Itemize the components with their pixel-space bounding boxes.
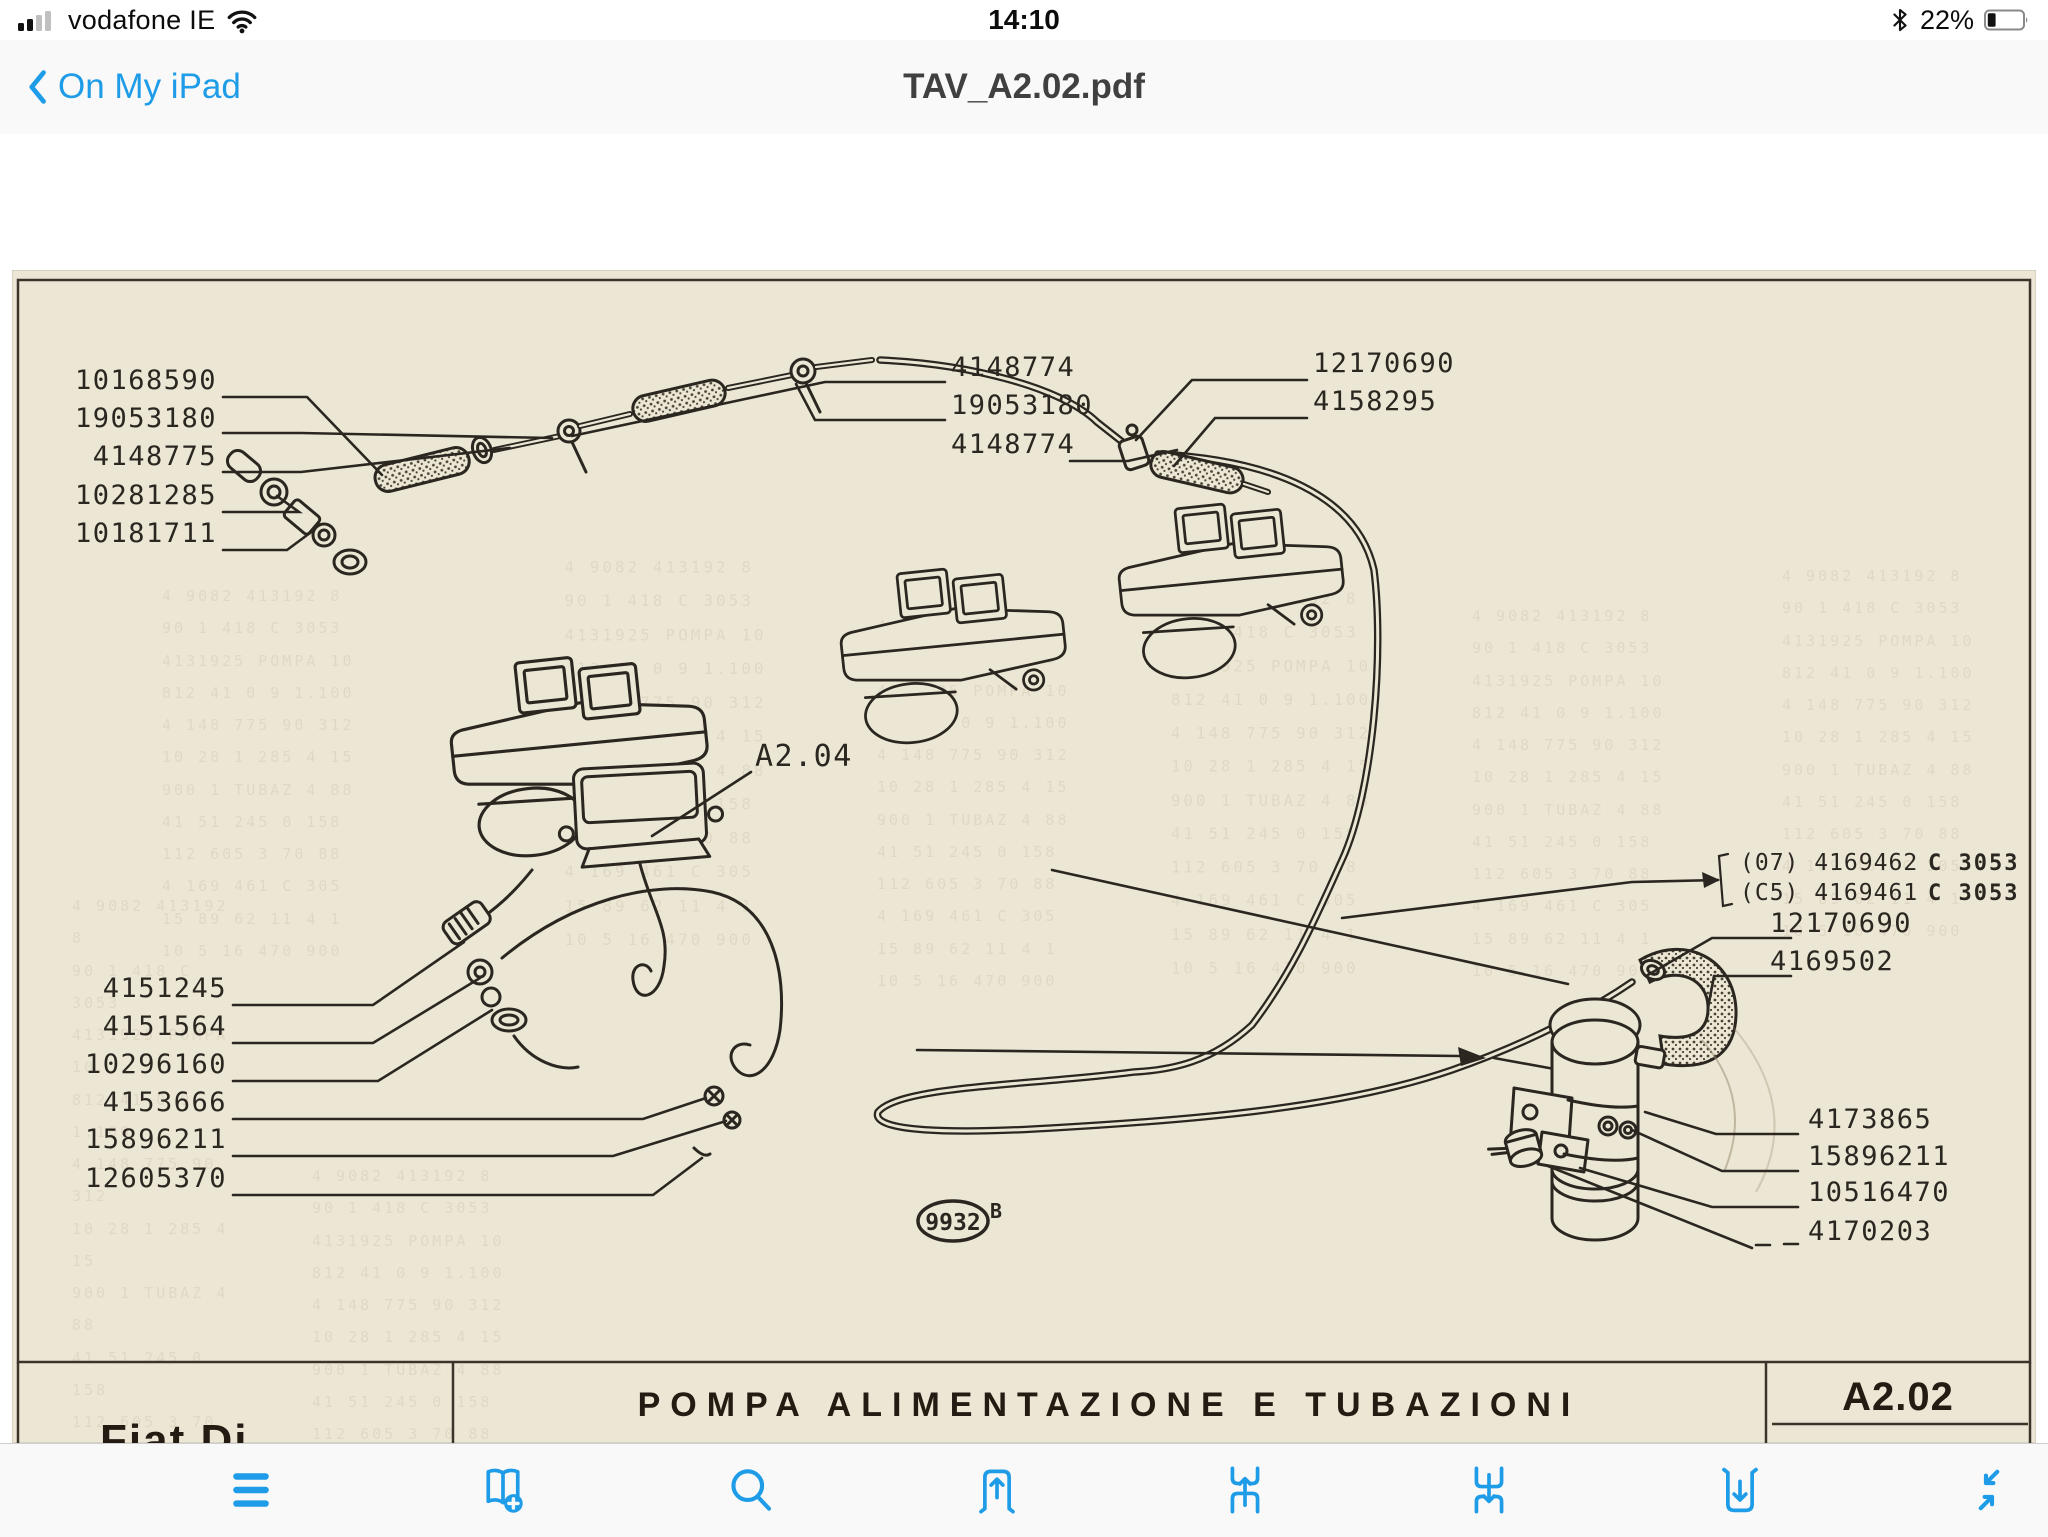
page-down-button[interactable] <box>1708 1458 1772 1522</box>
bottom-toolbar <box>0 1443 2048 1537</box>
menu-icon <box>226 1465 276 1515</box>
battery-icon <box>1984 8 2030 32</box>
back-button[interactable]: On My iPad <box>26 40 241 134</box>
part-callout: 4169502 <box>1770 946 1894 977</box>
part-callouts: 10168590 19053180 4148775 10281285 10181… <box>75 348 2020 1247</box>
diagram-reference-callout: A2.04 <box>755 739 853 774</box>
sheet-title: POMPA ALIMENTAZIONE E TUBAZIONI <box>638 1386 1581 1424</box>
clock: 14:10 <box>988 4 1060 36</box>
part-callout: C 3053 <box>1928 881 2019 906</box>
nav-bar: On My iPad TAV_A2.02.pdf <box>0 40 2048 135</box>
part-callout: 12605370 <box>85 1163 227 1194</box>
part-callout: 12170690 <box>1770 908 1912 939</box>
part-callout: 4151245 <box>103 973 227 1004</box>
ipad-screen: vodafone IE 14:10 22% <box>0 0 2048 1536</box>
wifi-icon <box>225 6 259 34</box>
cellular-signal-icon <box>18 8 58 32</box>
part-callout: 10181711 <box>75 518 217 549</box>
collapse-button[interactable] <box>1957 1458 2021 1522</box>
part-callout: 4158295 <box>1313 386 1437 417</box>
menu-button[interactable] <box>219 1458 283 1522</box>
part-callout: (07) 4169462 <box>1740 850 1918 876</box>
part-callout: (C5) 4169461 <box>1740 880 1918 906</box>
part-callout: 4148775 <box>93 441 217 472</box>
status-bar: vodafone IE 14:10 22% <box>0 0 2048 40</box>
pdf-page[interactable]: 4 9082 413192 8 90 1 418 C 3053 4131925 … <box>12 270 2036 1443</box>
battery-percent-label: 22% <box>1920 5 1974 36</box>
part-callout: 4173865 <box>1808 1104 1932 1135</box>
canister-drawing <box>1486 949 1775 1240</box>
part-callout: 4148774 <box>951 429 1075 460</box>
page-down-icon <box>1714 1464 1766 1516</box>
part-callout: C 3053 <box>1928 851 2019 876</box>
part-callout: 19053180 <box>75 403 217 434</box>
part-callout: 4153666 <box>103 1087 227 1118</box>
part-callout: 15896211 <box>1808 1141 1950 1172</box>
part-callout: 4170203 <box>1808 1216 1932 1247</box>
parts-diagram: 10168590 19053180 4148775 10281285 10181… <box>12 270 2036 1443</box>
stamp-suffix: B <box>990 1199 1002 1223</box>
part-callout: 10168590 <box>75 365 217 396</box>
part-callout: 4148774 <box>951 352 1075 383</box>
insert-page-below-icon <box>1463 1464 1515 1516</box>
document-title: TAV_A2.02.pdf <box>903 40 1145 134</box>
part-callout: 4151564 <box>103 1011 227 1042</box>
search-button[interactable] <box>719 1458 783 1522</box>
footer-left-partial-text: Fiat Di <box>100 1416 248 1443</box>
fuel-rail-drawing <box>224 359 1632 1131</box>
page-up-button[interactable] <box>965 1458 1029 1522</box>
collapse-icon <box>1963 1464 2015 1516</box>
insert-page-below-button[interactable] <box>1457 1458 1521 1522</box>
carrier-label: vodafone IE <box>68 5 215 36</box>
insert-page-above-icon <box>1219 1464 1271 1516</box>
part-callout: 10516470 <box>1808 1177 1950 1208</box>
pdf-content-area[interactable]: 4 9082 413192 8 90 1 418 C 3053 4131925 … <box>0 134 2048 1443</box>
part-callout: 15896211 <box>85 1124 227 1155</box>
add-bookmark-button[interactable] <box>471 1458 535 1522</box>
insert-page-above-button[interactable] <box>1213 1458 1277 1522</box>
page-up-icon <box>971 1464 1023 1516</box>
sheet-code: A2.02 <box>1842 1375 1954 1419</box>
part-callout: 12170690 <box>1313 348 1455 379</box>
back-button-label: On My iPad <box>58 67 241 107</box>
search-icon <box>725 1464 777 1516</box>
add-bookmark-icon <box>477 1464 529 1516</box>
part-callout: 10281285 <box>75 480 217 511</box>
back-chevron-icon <box>26 70 48 104</box>
stamp-number: 9932 <box>925 1210 980 1236</box>
carburetor-middle <box>835 557 1074 749</box>
part-callout: 19053180 <box>951 390 1093 421</box>
regulator-drawing <box>556 762 740 1155</box>
bluetooth-icon <box>1890 5 1910 35</box>
bracket-arrowhead <box>1702 872 1720 888</box>
revision-stamp: 9932 B <box>918 1199 1002 1241</box>
carburetor-right <box>1113 492 1352 684</box>
part-callout: 10296160 <box>85 1049 227 1080</box>
reference-arrow-line <box>917 1050 1460 1056</box>
reference-line <box>1052 870 1568 984</box>
pump-fittings-drawing <box>440 870 781 1076</box>
